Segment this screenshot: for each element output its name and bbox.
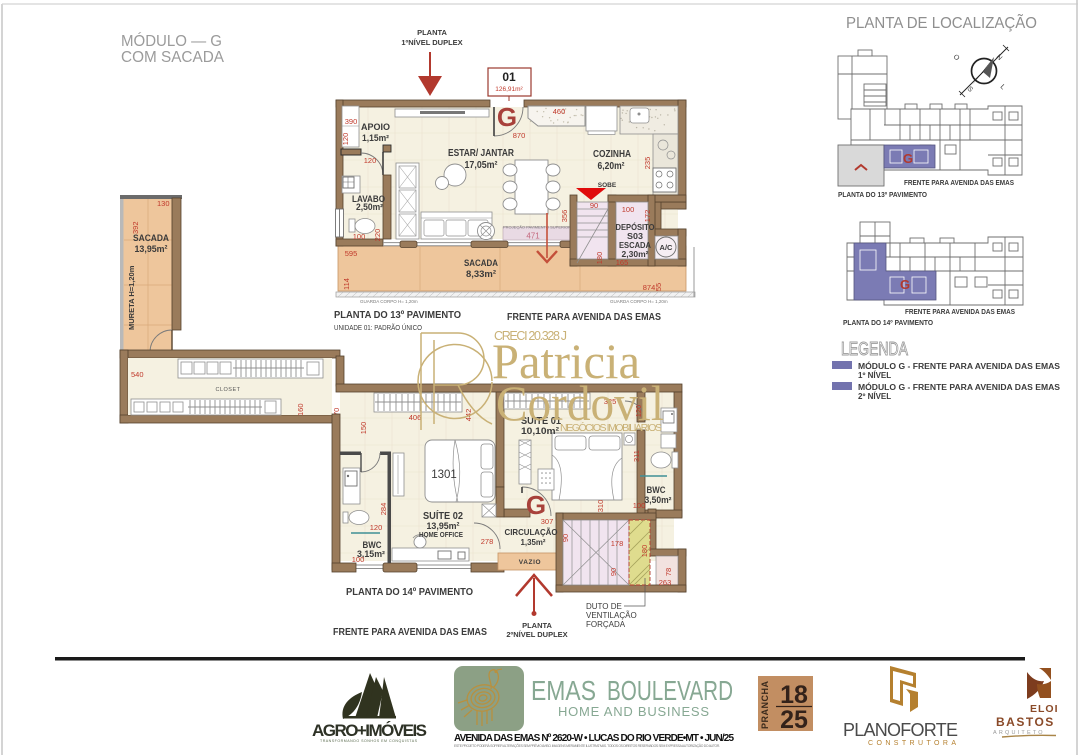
- svg-text:G: G: [497, 102, 517, 132]
- svg-text:120: 120: [370, 523, 383, 532]
- svg-text:311: 311: [632, 450, 641, 462]
- svg-text:1º NÍVEL: 1º NÍVEL: [858, 371, 891, 380]
- svg-text:78: 78: [664, 568, 673, 576]
- svg-text:406: 406: [409, 413, 422, 422]
- svg-text:120: 120: [364, 156, 377, 165]
- svg-text:460: 460: [553, 107, 566, 116]
- svg-text:FRENTE PARA AVENIDA DAS EMAS: FRENTE PARA AVENIDA DAS EMAS: [904, 180, 1014, 187]
- svg-text:FRENTE PARA AVENIDA DAS EMAS: FRENTE PARA AVENIDA DAS EMAS: [333, 627, 487, 638]
- svg-text:13,95m²: 13,95m²: [427, 521, 460, 532]
- svg-text:FRENTE PARA AVENIDA DAS EMAS: FRENTE PARA AVENIDA DAS EMAS: [507, 312, 661, 323]
- svg-text:180: 180: [595, 252, 604, 265]
- svg-text:263: 263: [659, 578, 672, 587]
- svg-text:220: 220: [373, 229, 382, 242]
- svg-text:FORÇADA: FORÇADA: [586, 620, 626, 629]
- svg-text:180: 180: [640, 545, 649, 558]
- svg-text:8,33m²: 8,33m²: [466, 269, 496, 280]
- svg-text:BWC: BWC: [647, 485, 666, 495]
- svg-text:APOIO: APOIO: [361, 122, 390, 132]
- svg-text:310: 310: [596, 500, 605, 513]
- svg-text:90: 90: [561, 534, 570, 542]
- svg-text:HOME OFFICE: HOME OFFICE: [419, 532, 463, 539]
- svg-text:172: 172: [643, 210, 652, 223]
- svg-text:NEGÓCIOS IMOBILIÁRIOS: NEGÓCIOS IMOBILIÁRIOS: [560, 421, 662, 434]
- svg-text:01: 01: [502, 70, 516, 84]
- svg-text:LEGENDA: LEGENDA: [841, 339, 908, 359]
- svg-text:SACADA: SACADA: [464, 258, 498, 269]
- svg-text:G: G: [900, 277, 910, 292]
- svg-text:VENTILAÇÃO: VENTILAÇÃO: [586, 611, 637, 620]
- svg-text:CIRCULAÇÃO: CIRCULAÇÃO: [505, 527, 558, 537]
- svg-text:150: 150: [359, 422, 368, 435]
- svg-text:114: 114: [342, 278, 351, 290]
- svg-text:DUTO DE: DUTO DE: [586, 602, 622, 611]
- svg-text:100: 100: [352, 555, 365, 564]
- svg-text:MÓDULO — G: MÓDULO — G: [121, 33, 222, 50]
- svg-text:1301: 1301: [431, 469, 457, 481]
- svg-text:3,50m²: 3,50m²: [645, 495, 672, 505]
- svg-text:MÓDULO G - FRENTE PARA AVENIDA: MÓDULO G - FRENTE PARA AVENIDA DAS EMAS: [858, 362, 1061, 371]
- svg-text:55: 55: [654, 283, 663, 291]
- svg-text:870: 870: [513, 131, 526, 140]
- svg-text:G: G: [526, 490, 546, 520]
- svg-text:BOULEVARD: BOULEVARD: [607, 675, 733, 706]
- svg-text:UNIDADE 01: PADRÃO ÚNICO: UNIDADE 01: PADRÃO ÚNICO: [334, 323, 422, 332]
- svg-text:126,91m²: 126,91m²: [495, 86, 523, 93]
- svg-text:TRANSFORMANDO SONHOS EM CONQUI: TRANSFORMANDO SONHOS EM CONQUISTAS: [320, 739, 418, 743]
- svg-text:100: 100: [353, 232, 366, 241]
- svg-text:ESTAR/ JANTAR: ESTAR/ JANTAR: [448, 147, 514, 159]
- svg-text:A/C: A/C: [660, 243, 674, 252]
- svg-text:G: G: [903, 151, 913, 166]
- svg-text:178: 178: [611, 539, 624, 548]
- svg-text:GUARDA CORPO H= 1,20m: GUARDA CORPO H= 1,20m: [360, 299, 418, 304]
- svg-text:18: 18: [780, 681, 808, 709]
- svg-text:2ºNÍVEL DUPLEX: 2ºNÍVEL DUPLEX: [506, 630, 567, 639]
- svg-text:BASTOS: BASTOS: [996, 715, 1055, 729]
- svg-text:17,05m²: 17,05m²: [465, 159, 498, 171]
- svg-text:1,15m²: 1,15m²: [362, 133, 389, 143]
- svg-text:130: 130: [157, 199, 170, 208]
- svg-text:COZINHA: COZINHA: [593, 148, 631, 160]
- svg-text:1ºNÍVEL DUPLEX: 1ºNÍVEL DUPLEX: [401, 38, 462, 47]
- svg-text:PLANTA DO 14º PAVIMENTO: PLANTA DO 14º PAVIMENTO: [346, 587, 473, 598]
- svg-text:90: 90: [609, 568, 618, 576]
- svg-text:13,95m²: 13,95m²: [135, 244, 168, 255]
- svg-text:PRANCHA: PRANCHA: [760, 680, 770, 729]
- svg-text:PLANTA DE LOCALIZAÇÃO: PLANTA DE LOCALIZAÇÃO: [846, 12, 1037, 32]
- svg-text:595: 595: [345, 249, 358, 258]
- svg-text:PLANTA: PLANTA: [522, 621, 552, 630]
- svg-text:278: 278: [481, 537, 494, 546]
- svg-text:ARQUITETO: ARQUITETO: [993, 730, 1045, 736]
- svg-text:2,50m²: 2,50m²: [356, 202, 383, 212]
- svg-text:PLANOFORTE: PLANOFORTE: [843, 720, 958, 740]
- svg-text:MURETA H=1,20m: MURETA H=1,20m: [127, 265, 136, 330]
- svg-text:MÓDULO G - FRENTE PARA AVENIDA: MÓDULO G - FRENTE PARA AVENIDA DAS EMAS: [858, 383, 1061, 392]
- svg-text:390: 390: [345, 117, 358, 126]
- svg-text:AGRO+IMÓVEIS: AGRO+IMÓVEIS: [312, 721, 427, 740]
- svg-text:284: 284: [379, 503, 388, 516]
- svg-text:120: 120: [341, 133, 350, 146]
- svg-text:160: 160: [296, 403, 305, 416]
- svg-text:25: 25: [780, 706, 808, 734]
- svg-text:FRENTE PARA AVENIDA DAS EMAS: FRENTE PARA AVENIDA DAS EMAS: [905, 309, 1015, 316]
- svg-text:90: 90: [590, 201, 598, 210]
- svg-text:PLANTA DO 13º PAVIMENTO: PLANTA DO 13º PAVIMENTO: [334, 310, 461, 321]
- svg-text:6,20m²: 6,20m²: [598, 160, 625, 172]
- svg-text:1,35m²: 1,35m²: [521, 537, 546, 547]
- svg-text:392: 392: [131, 221, 140, 234]
- svg-text:540: 540: [131, 370, 144, 379]
- svg-text:356: 356: [560, 210, 569, 223]
- svg-text:HOME AND BUSINESS: HOME AND BUSINESS: [558, 704, 711, 719]
- svg-text:GUARDA CORPO H= 1,20m: GUARDA CORPO H= 1,20m: [610, 299, 668, 304]
- svg-text:PROJEÇÃO PAVIMENTO SUPERIOR: PROJEÇÃO PAVIMENTO SUPERIOR: [503, 225, 571, 230]
- svg-text:PLANTA DO 13º PAVIMENTO: PLANTA DO 13º PAVIMENTO: [838, 192, 928, 199]
- svg-text:100: 100: [633, 501, 646, 510]
- svg-text:100: 100: [622, 205, 635, 214]
- svg-text:CONSTRUTORA: CONSTRUTORA: [868, 740, 959, 747]
- svg-text:AVENIDA DAS EMAS Nº 2620-W • L: AVENIDA DAS EMAS Nº 2620-W • LUCAS DO RI…: [454, 733, 734, 744]
- svg-text:EMAS: EMAS: [531, 675, 596, 706]
- svg-text:165: 165: [616, 258, 629, 267]
- svg-text:VAZIO: VAZIO: [519, 559, 541, 566]
- svg-text:ESTE PROJETO PODERÁ SOFRER ALT: ESTE PROJETO PODERÁ SOFRER ALTERAÇÕES SE…: [454, 743, 720, 748]
- svg-text:307: 307: [541, 517, 554, 526]
- svg-text:SOBE: SOBE: [598, 182, 617, 189]
- svg-text:2º NÍVEL: 2º NÍVEL: [858, 392, 891, 401]
- svg-text:PLANTA: PLANTA: [417, 28, 447, 37]
- svg-text:235: 235: [643, 157, 652, 170]
- svg-text:PLANTA DO 14º PAVIMENTO: PLANTA DO 14º PAVIMENTO: [843, 320, 934, 327]
- svg-text:ELOI: ELOI: [1030, 703, 1059, 715]
- svg-text:COM SACADA: COM SACADA: [121, 49, 225, 66]
- svg-text:471: 471: [526, 232, 540, 241]
- svg-text:CLOSET: CLOSET: [215, 387, 240, 393]
